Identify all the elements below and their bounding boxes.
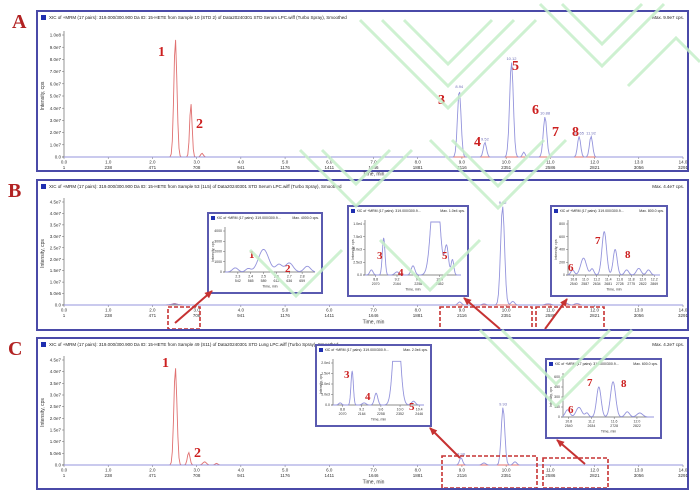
svg-text:2634: 2634 [593,282,601,286]
svg-text:659: 659 [299,279,305,283]
peak-number-7: 7 [587,378,593,389]
svg-text:2070: 2070 [372,282,380,286]
svg-text:Time, min: Time, min [363,172,385,178]
svg-text:10.0: 10.0 [397,408,404,412]
chromatogram-window-c: XIC of +MRM (17 pairs): 319.000/300.900 … [36,337,689,490]
svg-text:200: 200 [559,260,565,264]
svg-text:11.4: 11.4 [605,278,612,282]
svg-text:Intensity, cps: Intensity, cps [351,239,355,259]
svg-text:2728: 2728 [616,282,624,286]
panel-c-letter: C [8,339,22,359]
peak-number-2: 2 [194,447,201,461]
svg-text:2446: 2446 [415,412,423,416]
svg-text:9.2: 9.2 [359,408,364,412]
svg-text:Intensity, cps: Intensity, cps [319,374,323,394]
svg-text:0: 0 [563,273,565,277]
inset-title: XIC of +MRM (17 pairs): 319.000/300.9... [325,348,402,352]
svg-text:600: 600 [554,375,560,379]
window-icon [211,216,215,220]
svg-text:2070: 2070 [339,412,347,416]
inset-title: XIC of +MRM (17 pairs): 319.000/300.9... [357,209,439,213]
peak-number-6: 6 [532,104,539,118]
inset-title: XIC of +MRM (17 pairs): 319.000/300.9... [555,362,632,366]
svg-text:10.8: 10.8 [565,420,572,424]
zoom-inset-window-1: XIC of +MRM (17 pairs): 319.000/300.9...… [315,344,432,427]
inset-max-label: Max. 800.0 cps. [639,209,664,213]
peak-number-5: 5 [409,402,415,413]
inset-title: XIC of +MRM (17 pairs): 319.000/300.9... [560,209,638,213]
panel-b-letter: B [8,181,21,201]
svg-text:Time, min: Time, min [601,430,616,434]
peak-number-3: 3 [377,251,383,262]
svg-text:2164: 2164 [393,282,401,286]
svg-text:636: 636 [286,279,292,283]
peak-number-5: 5 [442,251,448,262]
svg-text:8.8: 8.8 [373,278,378,282]
svg-text:2000: 2000 [214,250,222,254]
svg-text:12.0: 12.0 [634,420,641,424]
svg-text:10.8: 10.8 [570,278,577,282]
inset-title: XIC of +MRM (17 pairs): 319.000/300.9... [217,216,291,220]
titlebar: XIC of +MRM (17 pairs): 319.000/300.9...… [552,207,666,215]
annotation-overlay: 12345678 [38,12,687,170]
inset-plot: 600450300150010.8254011.2263411.6272812.… [547,368,660,437]
svg-text:8.8: 8.8 [340,408,345,412]
svg-text:300: 300 [554,395,560,399]
svg-text:2.6: 2.6 [274,275,279,279]
svg-text:589: 589 [261,279,267,283]
svg-text:Time, min: Time, min [262,285,277,289]
titlebar: XIC of +MRM (17 pairs): 319.000/300.9...… [547,360,660,368]
svg-text:0.0: 0.0 [357,273,362,277]
svg-text:10.0: 10.0 [436,278,443,282]
zoom-inset-window-3: XIC of +MRM (17 pairs): 319.000/300.9...… [550,205,668,297]
svg-text:2258: 2258 [414,282,422,286]
svg-text:2.5e3: 2.5e3 [353,260,362,264]
trace-0 [365,222,461,275]
peak-number-2: 2 [285,264,291,275]
svg-text:600: 600 [559,235,565,239]
svg-text:Time, min: Time, min [371,418,386,422]
inset-plot: 400030002000100002.35422.45652.55892.661… [209,222,321,292]
svg-text:0: 0 [558,415,560,419]
peak-number-3: 3 [438,94,445,108]
annotation-overlay: XIC of +MRM (17 pairs): 319.000/300.9...… [38,181,687,329]
titlebar: XIC of +MRM (17 pairs): 319.000/300.9...… [209,214,321,222]
peak-number-8: 8 [572,126,579,140]
window-icon [351,209,355,213]
svg-text:Intensity, cps: Intensity, cps [211,241,215,261]
svg-text:2587: 2587 [581,282,589,286]
peak-number-4: 4 [474,136,481,150]
titlebar: XIC of +MRM (17 pairs): 319.000/300.9...… [317,346,430,354]
svg-text:10.4: 10.4 [416,408,423,412]
svg-text:2822: 2822 [639,282,647,286]
inset-plot: 2.0e41.5e41.0e45.0e30.08.820709.221649.6… [317,354,430,425]
svg-text:565: 565 [248,279,254,283]
peak-number-7: 7 [595,236,601,247]
svg-text:2.8: 2.8 [300,275,305,279]
peak-number-6: 6 [568,405,574,416]
svg-text:1000: 1000 [214,260,222,264]
svg-text:0: 0 [220,270,222,274]
svg-text:2775: 2775 [627,282,635,286]
inset-max-label: Max. 2.0e4 cps. [403,348,428,352]
peak-number-7: 7 [552,126,559,140]
inset-max-label: Max. 600.0 cps. [633,362,658,366]
svg-text:4000: 4000 [214,229,222,233]
svg-text:11.6: 11.6 [616,278,623,282]
svg-text:2352: 2352 [396,412,404,416]
trace-0 [225,249,315,272]
svg-text:11.2: 11.2 [588,420,595,424]
peak-number-8: 8 [625,250,631,261]
axes: 400030002000100002.35422.45652.55892.661… [211,227,315,289]
svg-text:3000: 3000 [214,239,222,243]
svg-text:2822: 2822 [633,424,641,428]
peak-number-3: 3 [344,370,350,381]
svg-text:2540: 2540 [565,424,573,428]
trace-0 [568,232,660,275]
window-icon [319,348,323,352]
trace-0 [333,361,424,405]
annotation-overlay: 12XIC of +MRM (17 pairs): 319.000/300.9.… [38,339,687,488]
zoom-inset-window-1: XIC of +MRM (17 pairs): 319.000/300.9...… [207,212,323,294]
peak-number-1: 1 [158,46,165,60]
svg-text:2352: 2352 [436,282,444,286]
svg-text:2681: 2681 [604,282,612,286]
peak-number-4: 4 [365,392,371,403]
svg-text:2634: 2634 [588,424,596,428]
svg-text:542: 542 [235,279,241,283]
svg-text:450: 450 [554,385,560,389]
svg-text:2.4: 2.4 [248,275,253,279]
svg-text:2258: 2258 [377,412,385,416]
peak-number-8: 8 [621,379,627,390]
svg-text:12.2: 12.2 [651,278,658,282]
svg-text:Intensity, cps: Intensity, cps [554,239,558,259]
svg-text:2.7: 2.7 [287,275,292,279]
trace-0 [563,382,654,417]
titlebar: XIC of +MRM (17 pairs): 319.000/300.9...… [349,207,467,215]
svg-text:2.3: 2.3 [235,275,240,279]
svg-text:2164: 2164 [358,412,366,416]
peak-number-5: 5 [512,60,519,74]
svg-text:12.0: 12.0 [639,278,646,282]
inset-max-label: Max. 1.0e4 cps. [440,209,465,213]
svg-text:2.0e4: 2.0e4 [321,361,330,365]
svg-text:2540: 2540 [570,282,578,286]
svg-text:Intensity, cps: Intensity, cps [549,387,553,407]
inset-max-label: Max. 4000.0 cps. [292,216,319,220]
svg-text:2869: 2869 [650,282,658,286]
svg-text:11.8: 11.8 [628,278,635,282]
svg-text:Time, min: Time, min [606,288,621,292]
svg-text:400: 400 [559,248,565,252]
svg-text:800: 800 [559,222,565,226]
peak-number-6: 6 [568,263,574,274]
panel-a-letter: A [12,12,26,32]
svg-text:612: 612 [274,279,280,283]
svg-text:11.2: 11.2 [593,278,600,282]
zoom-inset-window-2: XIC of +MRM (17 pairs): 319.000/300.9...… [347,205,469,297]
svg-text:1.0e4: 1.0e4 [353,222,362,226]
svg-text:7.5e3: 7.5e3 [353,235,362,239]
svg-text:9.6: 9.6 [416,278,421,282]
chromatogram-window-b: XIC of +MRM (17 pairs): 319.000/300.900 … [36,179,689,331]
svg-text:11.6: 11.6 [611,420,618,424]
svg-text:150: 150 [554,405,560,409]
window-icon [554,209,558,213]
svg-text:0.0: 0.0 [325,403,330,407]
peak-number-4: 4 [398,268,404,279]
window-icon [549,362,553,366]
inset-plot: 1.0e47.5e35.0e32.5e30.08.820709.221649.6… [349,215,467,295]
peak-number-1: 1 [162,357,169,371]
zoom-inset-window-2: XIC of +MRM (17 pairs): 319.000/300.9...… [545,358,662,439]
svg-text:Time, min: Time, min [405,288,420,292]
svg-text:2.5: 2.5 [261,275,266,279]
svg-text:9.6: 9.6 [378,408,383,412]
peak-number-2: 2 [196,118,203,132]
chromatogram-window-a: XIC of +MRM (17 pairs): 319.000/300.900 … [36,10,689,172]
inset-plot: 800600400200010.8254011.0258711.2263411.… [552,215,666,295]
svg-text:11.0: 11.0 [582,278,589,282]
svg-text:2728: 2728 [610,424,618,428]
peak-number-1: 1 [249,250,255,261]
